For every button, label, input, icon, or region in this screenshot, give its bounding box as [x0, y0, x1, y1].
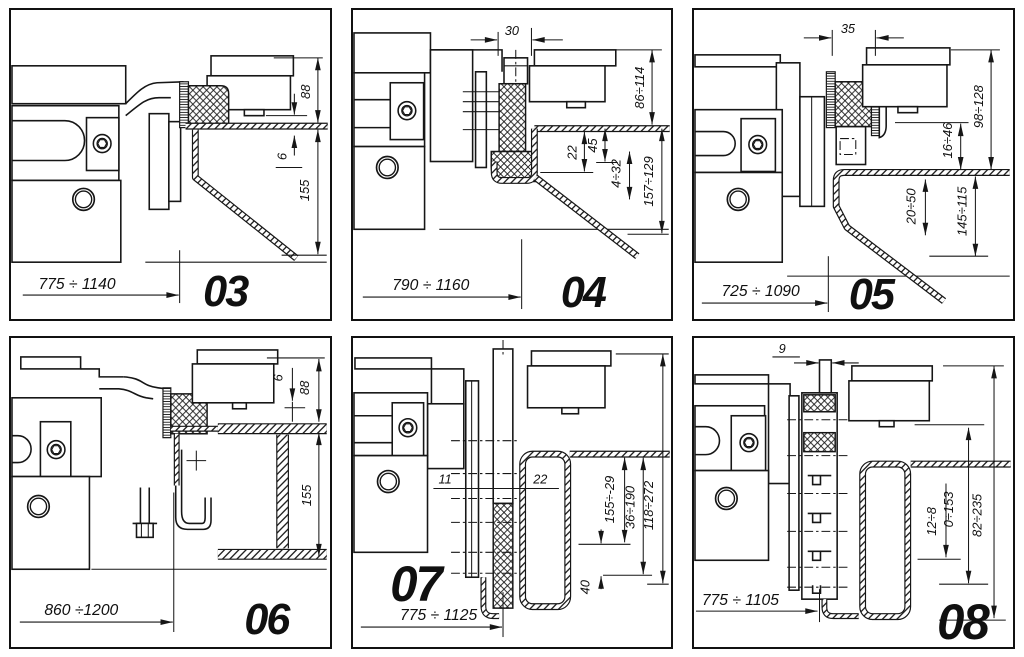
dim-30: 30 — [504, 23, 519, 38]
dim-6: 6 — [275, 152, 290, 160]
hole-icon — [728, 188, 750, 210]
hole-icon — [376, 157, 398, 179]
dim-40: 40 — [577, 579, 592, 594]
panel-06: 6 88 155 860 ÷1200 06 — [9, 336, 332, 649]
dim-88: 88 — [298, 84, 313, 99]
panel-number: 04 — [561, 269, 607, 317]
clamp-pad — [499, 84, 525, 152]
panel-number: 05 — [849, 271, 896, 319]
dim-35: 35 — [841, 21, 856, 36]
dim-36-190: 36÷190 — [622, 485, 637, 529]
drawing-06: 6 88 155 860 ÷1200 06 — [11, 338, 330, 647]
hole-icon — [73, 188, 95, 210]
drawing-05: 35 98÷128 16÷46 20÷50 145÷115 725 ÷ 1090 — [694, 10, 1013, 319]
dim-16-46: 16÷46 — [940, 122, 955, 159]
bolt-icon — [399, 419, 417, 437]
dim-9: 9 — [779, 341, 786, 356]
upper-beam — [192, 350, 277, 409]
panel-number: 06 — [244, 596, 291, 644]
panel-04: 30 86÷114 22 45 4÷32 157÷129 — [351, 8, 674, 321]
dim-86-114: 86÷114 — [632, 67, 647, 109]
machine-body — [695, 375, 790, 560]
dim-11: 11 — [438, 471, 451, 486]
panel-grid: 88 6 155 775 ÷ 1140 03 — [9, 8, 1015, 649]
dim-0-153: 0÷153 — [941, 491, 956, 528]
bolt-icon — [398, 102, 416, 120]
bolt-icon — [47, 441, 65, 459]
dim-20-50: 20÷50 — [904, 188, 919, 226]
clamp-pad — [180, 82, 229, 128]
dim-12-8: 12÷8 — [925, 506, 940, 536]
dim-118-272: 118÷272 — [641, 481, 656, 530]
hole-icon — [28, 495, 50, 517]
panel-number: 07 — [390, 557, 445, 612]
dim-145-115: 145÷115 — [955, 186, 970, 236]
dim-22: 22 — [564, 145, 579, 160]
dim-157-129: 157÷129 — [641, 156, 656, 206]
dim-bottom: 790 ÷ 1160 — [392, 277, 469, 294]
dim-88: 88 — [297, 380, 312, 395]
panel-07: 11 22 155÷-29 36÷190 118÷272 40 — [351, 336, 674, 649]
drawing-07: 11 22 155÷-29 36÷190 118÷272 40 — [353, 338, 672, 647]
bolt-icon — [93, 135, 111, 153]
dim-45: 45 — [585, 138, 600, 153]
bolt-icon — [749, 136, 767, 154]
clamp-column — [787, 360, 849, 599]
drawing-sheet: 88 6 155 775 ÷ 1140 03 — [0, 0, 1024, 657]
dim-bottom: 775 ÷ 1105 — [702, 592, 779, 609]
dim-155: 155 — [299, 484, 314, 506]
upper-beam — [527, 351, 610, 414]
dim-155-m29: 155÷-29 — [602, 476, 617, 523]
panel-number: 03 — [203, 268, 249, 316]
dim-bottom: 775 ÷ 1140 — [38, 276, 115, 293]
upper-beam — [863, 48, 950, 113]
bolt-icon — [740, 434, 758, 452]
dim-22: 22 — [532, 471, 547, 486]
panel-05: 35 98÷128 16÷46 20÷50 145÷115 725 ÷ 1090 — [692, 8, 1015, 321]
dim-98-128: 98÷128 — [972, 84, 987, 128]
drawing-03: 88 6 155 775 ÷ 1140 03 — [11, 10, 330, 319]
dim-4-32: 4÷32 — [608, 159, 623, 188]
upper-beam — [529, 50, 615, 108]
dim-82-235: 82÷235 — [970, 493, 985, 537]
panel-08: 9 12÷8 0÷153 82÷235 — [692, 336, 1015, 649]
dim-155: 155 — [297, 179, 312, 201]
drawing-04: 30 86÷114 22 45 4÷32 157÷129 — [353, 10, 672, 319]
drawing-08: 9 12÷8 0÷153 82÷235 — [694, 338, 1013, 647]
panel-number: 08 — [937, 595, 990, 647]
dim-6: 6 — [271, 373, 286, 381]
clamp-column — [462, 50, 535, 182]
dim-bottom: 860 ÷1200 — [44, 602, 118, 619]
dim-bottom: 725 ÷ 1090 — [722, 283, 801, 300]
hole-icon — [377, 471, 399, 493]
upper-beam — [849, 366, 932, 427]
hole-icon — [716, 488, 738, 510]
panel-03: 88 6 155 775 ÷ 1140 03 — [9, 8, 332, 321]
hook-bracket — [133, 450, 211, 538]
machine-body — [354, 358, 464, 552]
